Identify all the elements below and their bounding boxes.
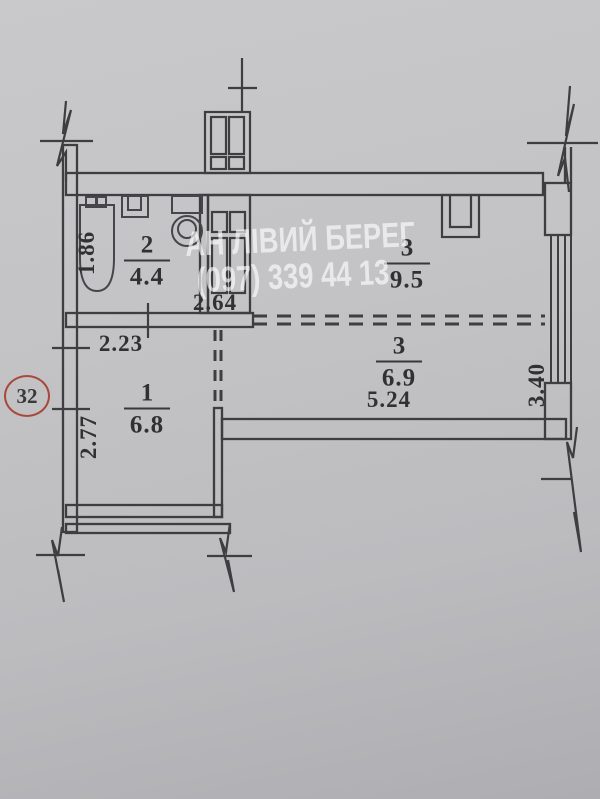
dim-living-depth: 3.40 <box>524 363 550 407</box>
vent-shaft-upper <box>205 58 257 173</box>
room-area: 6.8 <box>130 413 164 438</box>
floorplan-scan: 2 4.4 3 9.5 3 6.9 1 6.8 2.64 2.23 5.24 1… <box>0 0 600 799</box>
room-area: 4.4 <box>130 265 164 290</box>
wall-corridor <box>66 524 230 533</box>
room-number: 3 <box>393 334 406 359</box>
break-bottom-right <box>567 427 581 552</box>
fraction-bar <box>376 361 422 363</box>
break-bottom-left <box>52 527 64 602</box>
room-number: 1 <box>141 381 154 406</box>
room-area: 9.5 <box>390 268 424 293</box>
dim-hall-width: 2.23 <box>99 331 143 357</box>
wall-hall-right <box>214 408 222 517</box>
unit-number-badge: 32 <box>4 375 50 417</box>
wall-left <box>63 145 77 532</box>
wall-right-upper-pier <box>545 183 571 235</box>
dim-bathtub-length: 1.86 <box>74 231 100 275</box>
dashed-opening-vertical <box>215 330 221 408</box>
unit-number: 32 <box>17 384 38 409</box>
window-right <box>545 235 571 383</box>
room-label-hall: 1 6.8 <box>124 381 170 438</box>
dim-living-width: 5.24 <box>367 387 411 413</box>
sink-icon <box>122 196 148 217</box>
wall-top <box>66 173 543 195</box>
room-number: 2 <box>141 233 154 258</box>
wall-living-bottom <box>222 419 566 439</box>
watermark-phone: (097) 339 44 13 <box>196 253 390 301</box>
dim-hall-depth: 2.77 <box>76 415 102 459</box>
fraction-bar <box>124 260 170 262</box>
fraction-bar <box>384 263 430 265</box>
wall-hall-bottom <box>66 505 222 517</box>
fraction-bar <box>124 408 170 410</box>
floorplan-linework <box>0 0 600 799</box>
room-label-living-lower: 3 6.9 <box>376 334 422 391</box>
dashed-partition-horizontal <box>253 316 545 324</box>
room-label-bathroom: 2 4.4 <box>124 233 170 290</box>
duct-niche <box>442 195 479 237</box>
